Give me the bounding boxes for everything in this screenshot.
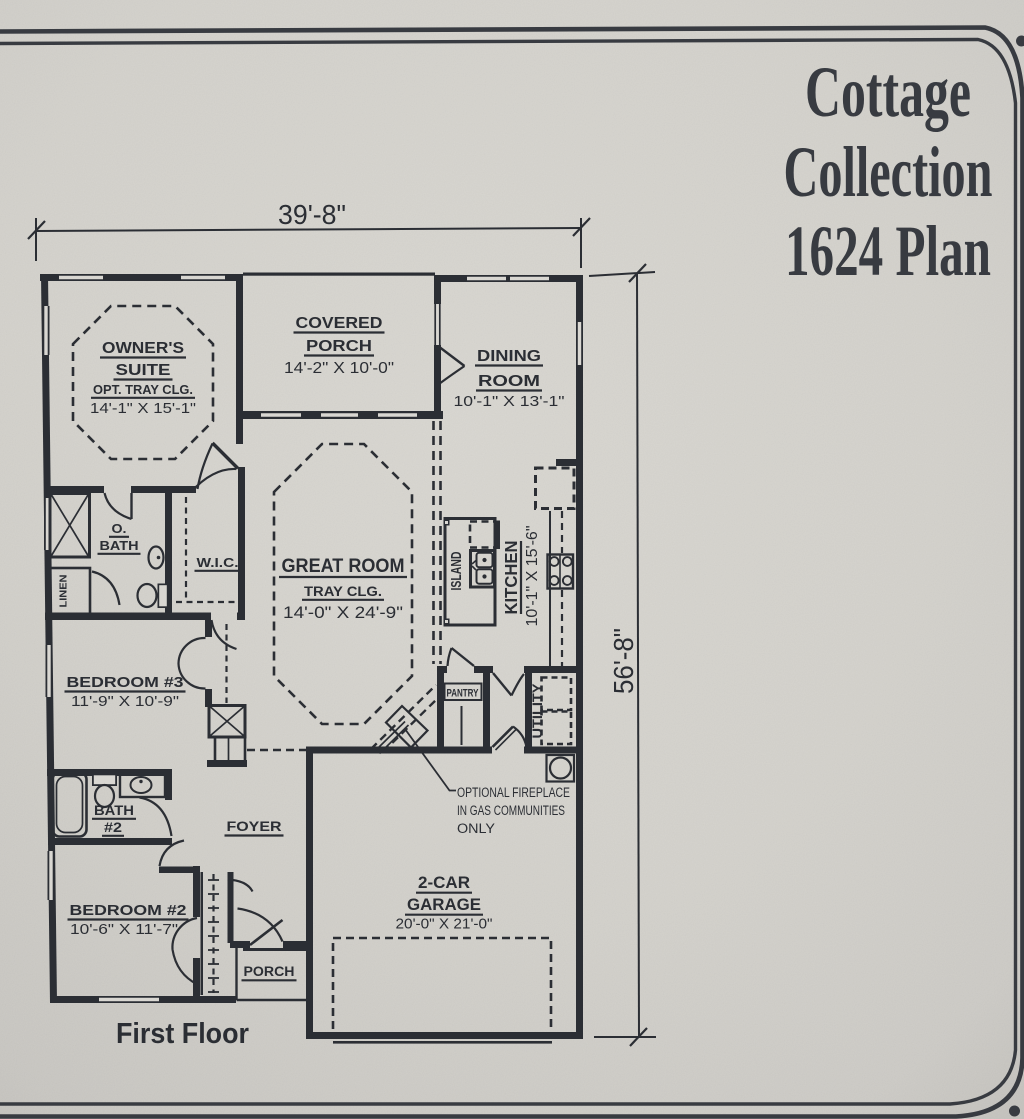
svg-text:20'-0" X 21'-0": 20'-0" X 21'-0" [396,916,493,933]
svg-text:ISLAND: ISLAND [448,551,465,590]
svg-text:56'-8": 56'-8" [608,628,639,694]
svg-text:ONLY: ONLY [457,821,495,836]
svg-text:W.I.C.: W.I.C. [197,555,239,570]
svg-text:10'-1" X 15'-6": 10'-1" X 15'-6" [524,526,541,627]
svg-text:OPTIONAL FIREPLACE: OPTIONAL FIREPLACE [457,785,570,800]
svg-text:BATH: BATH [94,803,134,818]
svg-text:39'-8": 39'-8" [278,199,346,230]
svg-text:BATH: BATH [100,538,139,553]
svg-text:COVERED: COVERED [296,315,383,332]
svg-text:ROOM: ROOM [478,373,540,390]
svg-text:GARAGE: GARAGE [407,896,481,914]
svg-text:10'-1" X 13'-1": 10'-1" X 13'-1" [454,393,565,410]
svg-text:O.: O. [112,521,127,536]
svg-text:OWNER'S: OWNER'S [102,340,184,357]
svg-text:#2: #2 [104,820,122,835]
svg-text:14'-1" X 15'-1": 14'-1" X 15'-1" [90,400,196,417]
svg-text:PANTRY: PANTRY [447,688,479,700]
svg-text:LINEN: LINEN [58,575,70,608]
svg-text:10'-6" X 11'-7": 10'-6" X 11'-7" [70,922,178,938]
svg-text:14'-0" X 24'-9": 14'-0" X 24'-9" [283,604,403,622]
svg-text:IN GAS COMMUNITIES: IN GAS COMMUNITIES [457,803,565,818]
svg-text:BEDROOM #3: BEDROOM #3 [67,674,184,691]
svg-text:GREAT ROOM: GREAT ROOM [282,556,405,577]
svg-text:1624 Plan: 1624 Plan [785,211,991,291]
svg-text:DINING: DINING [477,348,541,365]
svg-text:FOYER: FOYER [227,818,282,834]
svg-text:2-CAR: 2-CAR [418,874,470,892]
svg-text:BEDROOM #2: BEDROOM #2 [70,902,187,919]
svg-text:PORCH: PORCH [306,338,372,355]
svg-text:First Floor: First Floor [116,1018,249,1050]
svg-text:Cottage: Cottage [805,52,971,132]
svg-text:14'-2" X 10'-0": 14'-2" X 10'-0" [284,360,394,377]
svg-text:Collection: Collection [784,132,993,212]
svg-text:KITCHEN: KITCHEN [501,541,521,615]
svg-text:SUITE: SUITE [116,362,171,379]
svg-text:11'-9" X 10'-9": 11'-9" X 10'-9" [71,694,179,710]
svg-text:PORCH: PORCH [244,964,295,979]
svg-text:TRAY CLG.: TRAY CLG. [304,584,382,599]
svg-text:OPT. TRAY CLG.: OPT. TRAY CLG. [93,383,193,397]
svg-text:UTILITY: UTILITY [529,683,545,739]
